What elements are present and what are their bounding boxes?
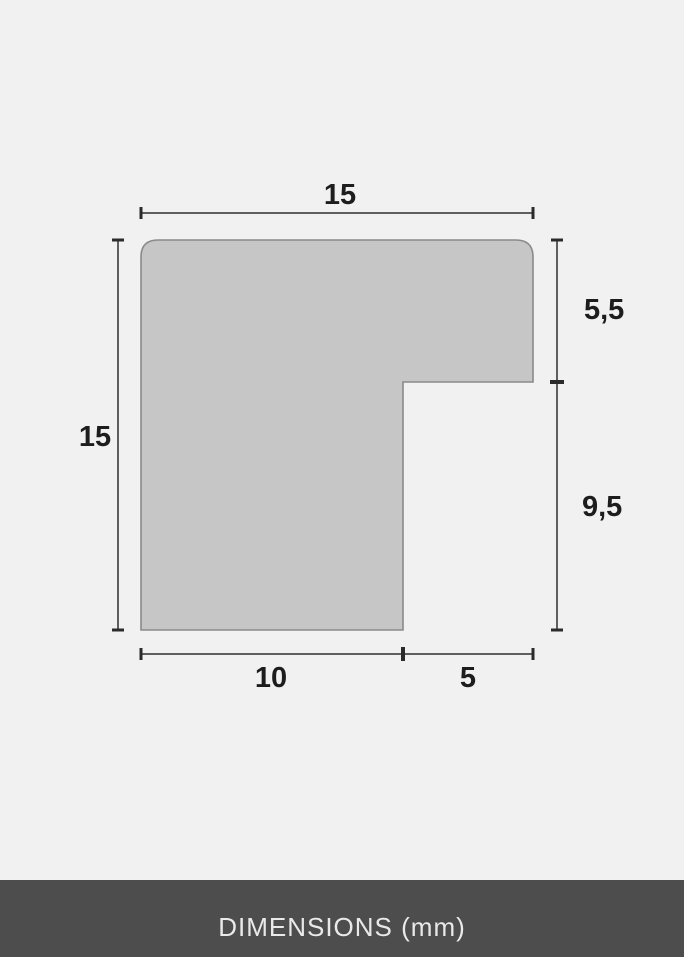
footer-title: DIMENSIONS (mm) (218, 912, 466, 943)
dimension-diagram: 15 15 5,5 9,5 10 5 (0, 0, 684, 880)
top-width-label: 15 (324, 179, 356, 211)
bottom-left-label: 10 (255, 662, 287, 694)
left-height-label: 15 (79, 421, 111, 453)
bottom-right-label: 5 (460, 662, 476, 694)
left-dimension-line (112, 240, 124, 630)
right-upper-label: 5,5 (584, 294, 624, 326)
bottom-dimension-line (141, 647, 533, 661)
right-lower-label: 9,5 (582, 491, 622, 523)
footer-bar: DIMENSIONS (mm) (0, 880, 684, 957)
frame-profile-shape (141, 240, 533, 630)
profile-diagram-svg: 15 15 5,5 9,5 10 5 (0, 0, 684, 880)
right-dimension-line (550, 240, 564, 630)
